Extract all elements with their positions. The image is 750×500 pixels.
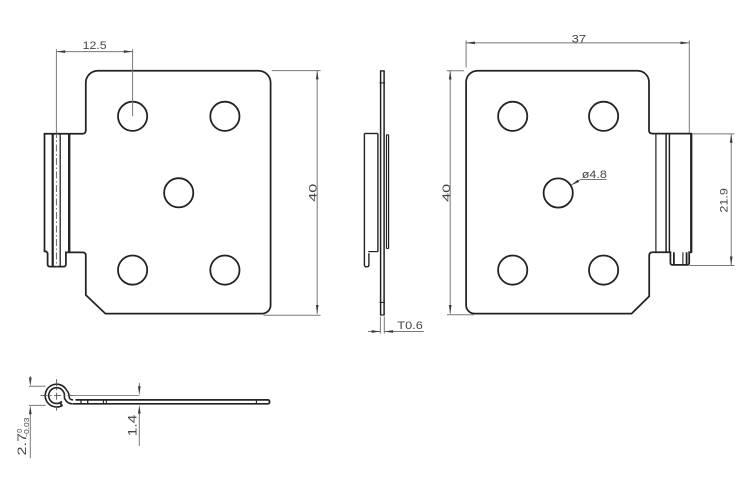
- svg-text:21.9: 21.9: [718, 188, 730, 213]
- svg-text:40: 40: [441, 184, 453, 202]
- svg-text:T0.6: T0.6: [397, 320, 423, 332]
- svg-text:1.4: 1.4: [126, 414, 140, 436]
- svg-text:37: 37: [572, 33, 587, 45]
- svg-text:12.5: 12.5: [83, 40, 107, 52]
- svg-text:ø4.8: ø4.8: [582, 169, 607, 181]
- svg-text:40: 40: [307, 184, 319, 202]
- svg-text:0: 0: [17, 429, 24, 433]
- svg-text:-0.03: -0.03: [24, 417, 31, 436]
